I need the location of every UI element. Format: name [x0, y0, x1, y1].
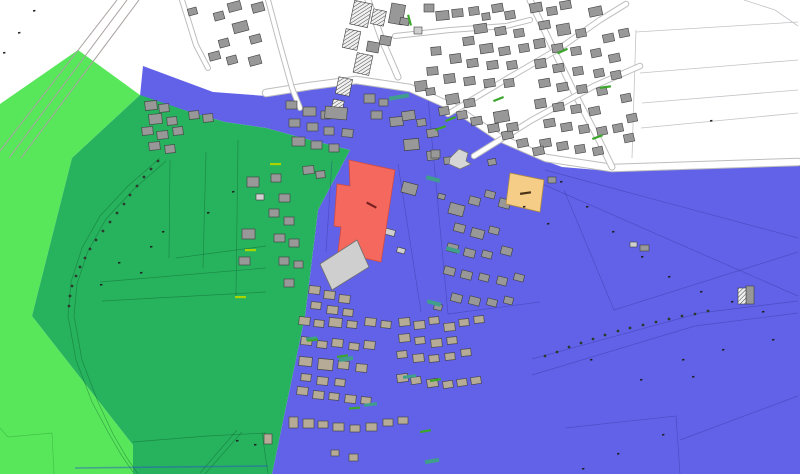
- parcel-number-mark: [33, 10, 36, 12]
- building[interactable]: [248, 55, 262, 67]
- building[interactable]: [463, 76, 475, 85]
- building[interactable]: [556, 141, 568, 151]
- building[interactable]: [574, 144, 585, 154]
- building[interactable]: [329, 144, 339, 152]
- building[interactable]: [311, 302, 322, 310]
- building[interactable]: [157, 131, 169, 140]
- tree-icon: [694, 313, 697, 316]
- building[interactable]: [347, 321, 358, 329]
- building[interactable]: [438, 106, 449, 116]
- building[interactable]: [529, 2, 542, 13]
- building[interactable]: [333, 423, 344, 431]
- building[interactable]: [471, 376, 482, 384]
- building[interactable]: [269, 209, 279, 217]
- building[interactable]: [284, 279, 294, 287]
- building[interactable]: [426, 87, 436, 95]
- building[interactable]: [491, 3, 503, 13]
- building[interactable]: [447, 337, 458, 345]
- building[interactable]: [173, 127, 184, 136]
- parcel-number-mark: [18, 32, 21, 34]
- building[interactable]: [364, 94, 375, 103]
- building[interactable]: [292, 137, 305, 146]
- building[interactable]: [279, 194, 290, 202]
- map-viewport[interactable]: [0, 0, 800, 474]
- tree-icon: [79, 266, 82, 269]
- building[interactable]: [556, 82, 568, 92]
- building[interactable]: [560, 122, 572, 132]
- tree-icon: [617, 330, 620, 333]
- building[interactable]: [332, 339, 344, 348]
- building[interactable]: [570, 104, 581, 114]
- building[interactable]: [329, 393, 340, 401]
- building[interactable]: [379, 99, 388, 106]
- building[interactable]: [445, 353, 456, 361]
- building[interactable]: [397, 351, 408, 359]
- building[interactable]: [463, 98, 475, 108]
- building[interactable]: [602, 33, 614, 43]
- building[interactable]: [142, 127, 154, 136]
- building[interactable]: [379, 35, 391, 46]
- building[interactable]: [570, 46, 581, 56]
- building[interactable]: [339, 295, 351, 304]
- building[interactable]: [556, 23, 571, 36]
- building[interactable]: [350, 0, 373, 27]
- building[interactable]: [297, 387, 309, 396]
- building[interactable]: [227, 0, 242, 12]
- parcel-lines-white-area: [641, 113, 798, 128]
- building[interactable]: [256, 194, 264, 200]
- building[interactable]: [159, 104, 170, 113]
- building[interactable]: [493, 110, 510, 123]
- building[interactable]: [364, 341, 376, 350]
- building[interactable]: [149, 142, 161, 151]
- building[interactable]: [449, 53, 461, 63]
- tree-icon: [150, 168, 153, 171]
- building[interactable]: [457, 378, 468, 386]
- building[interactable]: [313, 391, 325, 400]
- building[interactable]: [301, 374, 312, 382]
- building[interactable]: [414, 27, 422, 34]
- building[interactable]: [213, 11, 225, 21]
- building[interactable]: [366, 423, 377, 431]
- tree-icon: [157, 160, 160, 163]
- building[interactable]: [342, 129, 354, 138]
- building[interactable]: [459, 319, 470, 327]
- building[interactable]: [335, 379, 346, 387]
- building[interactable]: [518, 43, 529, 53]
- tree-icon: [143, 176, 146, 179]
- parcel-lines-white-area: [642, 90, 798, 103]
- building[interactable]: [436, 10, 450, 20]
- tree-icon: [75, 275, 78, 278]
- building[interactable]: [470, 116, 482, 126]
- building[interactable]: [274, 234, 285, 242]
- building[interactable]: [203, 114, 214, 123]
- building[interactable]: [610, 70, 621, 80]
- building[interactable]: [534, 58, 546, 69]
- building[interactable]: [239, 257, 250, 265]
- building[interactable]: [371, 111, 382, 119]
- building[interactable]: [167, 117, 178, 126]
- building[interactable]: [498, 46, 510, 56]
- building[interactable]: [413, 354, 425, 363]
- building[interactable]: [424, 4, 434, 12]
- building[interactable]: [575, 28, 586, 38]
- building[interactable]: [431, 339, 443, 348]
- tree-icon: [655, 321, 658, 324]
- building[interactable]: [247, 177, 259, 187]
- building[interactable]: [487, 123, 499, 133]
- tree-icon: [102, 230, 105, 233]
- building[interactable]: [546, 6, 557, 16]
- building[interactable]: [264, 434, 272, 444]
- building[interactable]: [482, 12, 491, 20]
- building[interactable]: [503, 78, 514, 87]
- building[interactable]: [626, 113, 637, 123]
- building[interactable]: [309, 286, 321, 295]
- building[interactable]: [208, 51, 221, 62]
- building[interactable]: [343, 309, 354, 317]
- building[interactable]: [299, 317, 311, 326]
- tree-icon: [707, 310, 710, 313]
- building[interactable]: [548, 177, 556, 183]
- building[interactable]: [226, 55, 238, 65]
- building[interactable]: [366, 41, 380, 53]
- building[interactable]: [572, 66, 583, 76]
- tree-icon: [668, 318, 671, 321]
- building[interactable]: [251, 2, 265, 14]
- building[interactable]: [390, 116, 404, 126]
- building[interactable]: [331, 450, 339, 456]
- building[interactable]: [494, 26, 506, 36]
- tree-icon: [681, 315, 684, 318]
- building[interactable]: [318, 358, 334, 370]
- building[interactable]: [349, 343, 360, 351]
- building[interactable]: [538, 20, 550, 30]
- street-label: [270, 163, 281, 165]
- tree-icon: [69, 295, 72, 298]
- building[interactable]: [365, 318, 377, 327]
- building[interactable]: [149, 113, 163, 124]
- tree-icon: [642, 324, 645, 327]
- tree-icon: [123, 203, 126, 206]
- building[interactable]: [462, 36, 474, 45]
- tree-icon: [71, 285, 74, 288]
- tree-icon: [592, 338, 595, 341]
- building[interactable]: [746, 286, 754, 304]
- building[interactable]: [325, 106, 348, 120]
- building[interactable]: [506, 60, 517, 70]
- building[interactable]: [289, 239, 299, 247]
- building[interactable]: [588, 106, 600, 116]
- tree-icon: [68, 305, 71, 308]
- building[interactable]: [294, 261, 303, 268]
- building[interactable]: [289, 119, 300, 127]
- building[interactable]: [461, 349, 472, 357]
- building[interactable]: [371, 9, 387, 26]
- tree-icon: [604, 334, 607, 337]
- tree-icon: [129, 194, 132, 197]
- tree-icon: [109, 221, 112, 224]
- building[interactable]: [303, 166, 315, 175]
- building[interactable]: [588, 6, 603, 18]
- building[interactable]: [473, 23, 487, 34]
- building[interactable]: [483, 78, 495, 87]
- building[interactable]: [538, 78, 550, 88]
- building[interactable]: [187, 7, 198, 16]
- tree-icon: [544, 355, 547, 358]
- building[interactable]: [350, 425, 360, 432]
- building[interactable]: [303, 107, 316, 116]
- tree-icon: [116, 212, 119, 215]
- building[interactable]: [533, 38, 545, 49]
- building[interactable]: [189, 111, 200, 120]
- parcel-lines-white-area: [640, 60, 798, 73]
- building[interactable]: [345, 395, 357, 404]
- building[interactable]: [443, 380, 454, 388]
- building[interactable]: [592, 146, 603, 156]
- building[interactable]: [404, 138, 420, 150]
- building[interactable]: [232, 20, 249, 34]
- building[interactable]: [640, 245, 649, 251]
- building[interactable]: [578, 124, 589, 134]
- building[interactable]: [311, 141, 322, 149]
- building[interactable]: [399, 318, 411, 327]
- building[interactable]: [165, 145, 176, 154]
- building[interactable]: [468, 6, 479, 15]
- building[interactable]: [314, 320, 325, 328]
- tree-icon: [556, 351, 559, 354]
- map-canvas[interactable]: [0, 0, 800, 474]
- building[interactable]: [317, 341, 328, 349]
- building[interactable]: [543, 118, 555, 128]
- building[interactable]: [612, 123, 623, 133]
- building[interactable]: [415, 337, 426, 345]
- building[interactable]: [399, 334, 411, 343]
- building[interactable]: [356, 364, 368, 373]
- building[interactable]: [289, 417, 298, 428]
- parcel-lines-white-area: [636, 22, 798, 32]
- street-label: [493, 96, 504, 102]
- building[interactable]: [618, 28, 629, 38]
- building[interactable]: [303, 419, 314, 428]
- building[interactable]: [534, 98, 546, 109]
- building[interactable]: [324, 127, 334, 135]
- building[interactable]: [284, 217, 294, 225]
- building[interactable]: [488, 158, 497, 165]
- building[interactable]: [552, 102, 564, 112]
- building[interactable]: [417, 118, 427, 126]
- building[interactable]: [299, 356, 313, 366]
- building[interactable]: [576, 84, 587, 94]
- building[interactable]: [429, 355, 440, 363]
- building[interactable]: [431, 150, 440, 158]
- building[interactable]: [342, 29, 361, 51]
- building[interactable]: [608, 53, 620, 63]
- tree-icon: [580, 342, 583, 345]
- street-label: [245, 249, 256, 251]
- tree-icon: [89, 248, 92, 251]
- building[interactable]: [381, 321, 392, 329]
- building[interactable]: [513, 28, 524, 38]
- building[interactable]: [738, 288, 746, 304]
- building[interactable]: [630, 242, 637, 247]
- building[interactable]: [316, 171, 326, 179]
- building[interactable]: [349, 454, 358, 461]
- building[interactable]: [590, 48, 601, 58]
- building[interactable]: [398, 417, 408, 424]
- building[interactable]: [307, 123, 318, 131]
- building[interactable]: [249, 34, 262, 45]
- building[interactable]: [504, 10, 515, 20]
- tree-icon: [84, 257, 87, 260]
- building[interactable]: [479, 43, 493, 54]
- building[interactable]: [329, 317, 343, 327]
- street-label: [235, 296, 246, 298]
- building[interactable]: [145, 100, 158, 110]
- building[interactable]: [414, 321, 426, 330]
- building[interactable]: [474, 316, 485, 324]
- building[interactable]: [324, 291, 336, 300]
- building[interactable]: [218, 38, 230, 48]
- building[interactable]: [327, 306, 339, 315]
- building[interactable]: [559, 0, 571, 10]
- building[interactable]: [620, 93, 631, 103]
- building[interactable]: [452, 9, 464, 18]
- building[interactable]: [506, 122, 518, 132]
- building[interactable]: [486, 60, 498, 69]
- building[interactable]: [286, 101, 297, 109]
- building[interactable]: [466, 58, 478, 67]
- building[interactable]: [242, 229, 255, 239]
- building[interactable]: [431, 47, 442, 56]
- building[interactable]: [383, 419, 393, 426]
- building[interactable]: [429, 317, 440, 325]
- building[interactable]: [271, 174, 281, 182]
- building[interactable]: [317, 377, 329, 386]
- tree-icon: [568, 346, 571, 349]
- tree-icon: [629, 327, 632, 330]
- building[interactable]: [552, 63, 564, 73]
- building[interactable]: [443, 73, 455, 83]
- parcel-number-mark: [3, 52, 6, 54]
- building[interactable]: [318, 421, 328, 428]
- tree-icon: [136, 185, 139, 188]
- building[interactable]: [353, 53, 373, 76]
- tree-icon: [95, 239, 98, 242]
- building[interactable]: [444, 323, 456, 332]
- building[interactable]: [456, 110, 467, 120]
- building[interactable]: [623, 133, 634, 143]
- building[interactable]: [427, 67, 439, 76]
- building[interactable]: [445, 93, 460, 105]
- building[interactable]: [279, 257, 289, 265]
- building[interactable]: [593, 68, 604, 78]
- building[interactable]: [401, 110, 415, 121]
